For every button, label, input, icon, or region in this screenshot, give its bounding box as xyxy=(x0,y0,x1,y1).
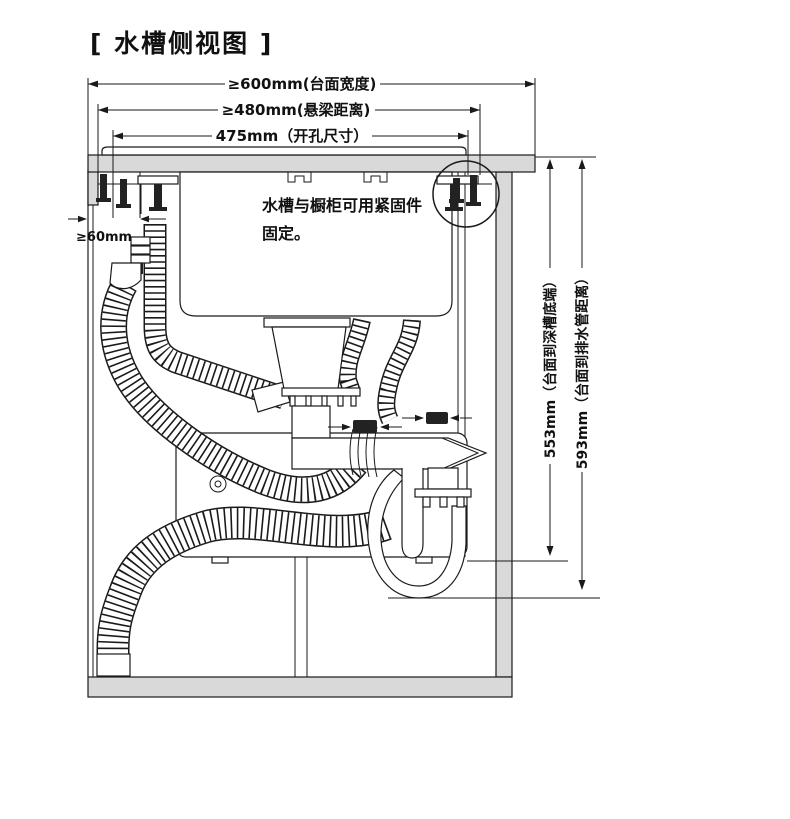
dim-label-countertop-width: ≥600mm(台面宽度) xyxy=(228,75,377,93)
cabinet-bottom-panel xyxy=(88,677,512,697)
sink-side-view-diagram: 水槽与橱柜可用紧固件 固定。 xyxy=(0,0,790,819)
page-title: [ 水槽侧视图 ] xyxy=(90,29,273,58)
trap-slip-nut xyxy=(415,489,471,497)
sink-basin xyxy=(180,172,452,316)
hose-end-cap xyxy=(97,654,130,676)
dim-label-side-clearance: ≥60mm xyxy=(76,230,132,245)
trap-standpipe xyxy=(402,468,423,558)
dim-label-depth-basin: 553mm（台面到深槽底端） xyxy=(542,274,559,458)
sink-rim xyxy=(102,147,466,155)
fastener-note-line2: 固定。 xyxy=(262,224,310,243)
faucet-hoses xyxy=(348,320,412,420)
cabinet-right-wall xyxy=(496,172,512,677)
assembly-screw-markers xyxy=(328,412,472,433)
dim-label-cutout-size: 475mm（开孔尺寸） xyxy=(216,127,369,145)
fastener-note-line1: 水槽与橱柜可用紧固件 xyxy=(262,196,422,215)
strainer-nut xyxy=(282,388,360,396)
strainer-flange xyxy=(264,318,350,327)
trap-neck xyxy=(428,468,458,489)
dim-label-depth-drainpipe: 593mm（台面到排水管距离） xyxy=(574,271,591,469)
dim-label-beam-distance: ≥480mm(悬梁距离) xyxy=(222,101,371,119)
tailpipe xyxy=(292,406,330,438)
left-fastener-assembly xyxy=(96,174,178,214)
